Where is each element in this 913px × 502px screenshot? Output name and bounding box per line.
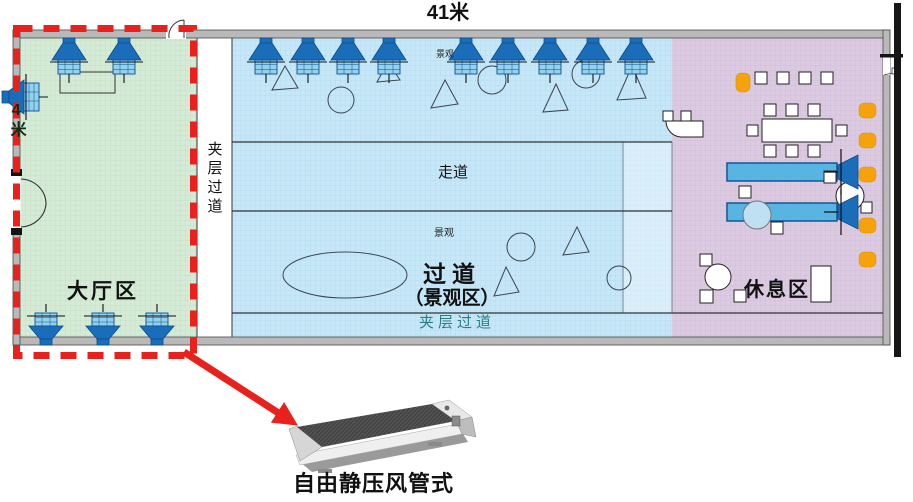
rest-area-label: 休息区	[744, 279, 810, 301]
orange-seat	[859, 252, 876, 267]
chair-square	[836, 125, 847, 136]
floor-plan-slide: 41米 4米 夹层过道 走道 景观 景观 过道 （景观区） 大厅区 休息区 夹层…	[0, 0, 913, 502]
chair-square	[786, 104, 798, 116]
chair-square	[808, 145, 820, 157]
unit-caption: 自由静压风管式	[293, 472, 454, 496]
chair-square	[764, 104, 776, 116]
air-duct-bar	[727, 163, 837, 181]
chair-square	[663, 111, 673, 121]
chair-square	[821, 72, 833, 84]
orange-seat	[859, 167, 876, 182]
chair-square	[700, 254, 712, 266]
chair-square	[799, 72, 811, 84]
orange-seat	[859, 218, 876, 233]
round-table	[705, 264, 731, 290]
left-dimension-label: 4米	[7, 102, 25, 139]
top-dimension-label: 41米	[398, 2, 498, 24]
mezzanine-bottom-label: 夹层过道	[419, 315, 495, 332]
chair-square	[808, 104, 820, 116]
chair-square	[771, 222, 783, 234]
chair-square	[755, 72, 767, 84]
orange-seat	[859, 133, 876, 148]
walkway-label: 走道	[427, 165, 479, 182]
chair-square	[747, 125, 758, 136]
chair-square	[764, 145, 776, 157]
chair-square	[824, 171, 836, 183]
chair-square	[861, 202, 872, 213]
chair-square	[700, 290, 713, 303]
corridor-sub-label: （景观区）	[392, 289, 512, 310]
corridor-label: 过道	[402, 262, 502, 287]
chair-square	[681, 111, 691, 121]
lobby-label: 大厅区	[67, 280, 139, 303]
table	[811, 266, 831, 302]
table	[762, 119, 832, 142]
landscape-top-label: 景观	[436, 50, 454, 60]
chair-square	[739, 186, 751, 198]
floor-plan	[0, 0, 913, 502]
mezzanine-side-label: 夹层过道	[205, 141, 222, 217]
callout-arrow	[184, 352, 280, 414]
round-feature	[743, 201, 771, 229]
orange-seat	[859, 103, 876, 118]
right-datum-bar	[894, 3, 901, 357]
landscape-mid-label: 景观	[434, 228, 454, 239]
chair-square	[786, 145, 798, 157]
chair-square	[777, 72, 789, 84]
duct-ac-unit-photo	[289, 400, 476, 473]
orange-seat	[736, 73, 750, 92]
